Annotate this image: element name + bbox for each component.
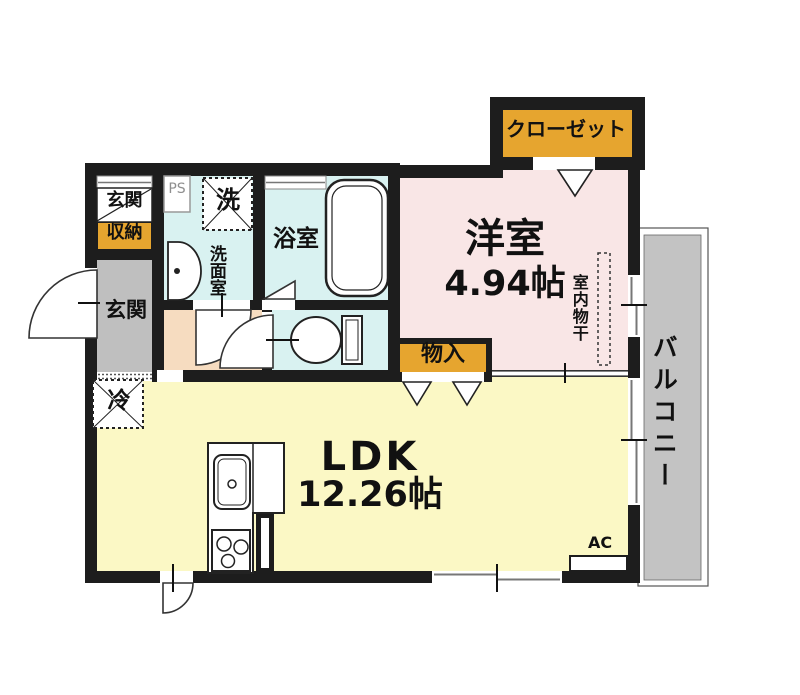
entrance-storage-label-2: 収納 [97,224,152,243]
refrigerator-label: 冷 [95,389,143,413]
entrance-label: 玄関 [97,299,155,321]
ldk-label: LDK [305,436,435,478]
western-room-size-label: 4.94帖 [415,266,595,303]
pipe-space-label: PS [163,182,191,197]
western-room-label: 洋室 [425,218,585,260]
ac-unit-box [570,556,627,571]
bathtub [326,180,388,296]
indoor-drying-label: 室内物干 [570,252,587,364]
washing-machine-label: 洗 [206,188,250,213]
ldk-service-door-swing [163,583,193,613]
ldk-western-partition [492,370,628,377]
bathroom-label: 浴室 [258,227,334,251]
ldk-size-label: 12.26帖 [290,477,450,514]
ac-label: AC [582,535,618,552]
kitchen-stove [212,530,250,571]
entrance-storage-label-1: 玄関 [97,192,152,211]
closet-label: クローゼット [500,119,632,140]
floor-plan: クローゼット 洋室 4.94帖 室内物干 バルコニー 物入 LDK 12.26帖… [0,0,800,695]
storage-label: 物入 [398,343,488,366]
balcony-label: バルコニー [650,326,676,501]
washroom-label: 洗面室 [206,230,224,310]
window-ldk-balcony [628,378,640,505]
